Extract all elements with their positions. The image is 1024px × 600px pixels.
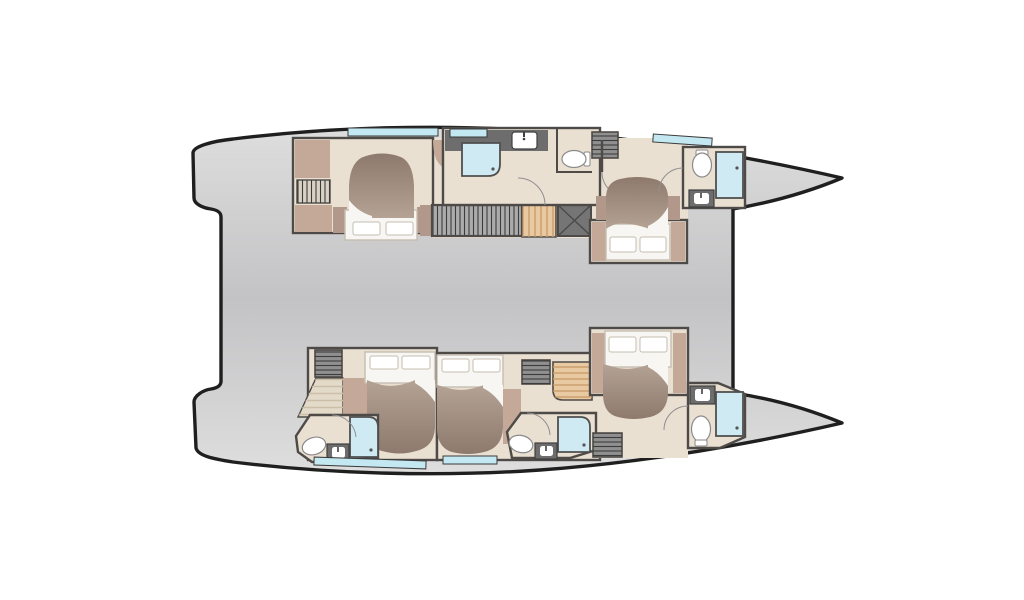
dresser [295,205,332,232]
duvet [349,154,414,219]
hull-window [450,129,487,137]
pillow [640,237,666,252]
shelf-louver-icon [522,360,550,384]
hull-window [348,128,438,136]
starboard-aft-cabin [296,348,437,462]
double-bed [437,355,503,454]
pillow [386,222,413,235]
starboard-aft-bathroom [296,415,378,462]
shelf-louver-icon [432,205,522,236]
pillow [402,356,430,369]
toilet-icon [562,151,590,168]
double-bed [345,154,417,241]
starboard-mid-cabin [437,353,600,460]
shower-icon [716,152,743,198]
wardrobe-louver-icon [297,180,330,203]
bed-side-cabinet [668,196,680,220]
hull-window [443,456,497,464]
double-bed [603,331,671,419]
catamaran-floor-plan [0,0,1024,600]
pillow [640,337,667,352]
shelf-louver-icon [315,350,342,377]
bed-side-cabinet [592,222,606,261]
double-bed [606,177,670,260]
washbasin-icon [689,190,714,207]
shower-icon [558,417,590,452]
pillow [609,337,636,352]
floor-hatch-icon [558,205,591,236]
wardrobe [295,140,330,178]
shower-icon [350,417,378,457]
bed-side-cabinet [671,222,685,261]
pillow [610,237,636,252]
staircase-icon [553,362,592,400]
starboard-forward-cabin [590,328,688,458]
washbasin-icon [535,443,557,459]
duvet [437,385,503,454]
shower-icon [716,392,743,436]
bed-side-cabinet [596,196,606,220]
shelf-louver-icon [593,433,622,457]
pillow [370,356,398,369]
starboard-mid-bathroom [507,413,596,459]
port-mid-bathroom [443,128,600,205]
pillow [353,222,380,235]
washbasin-icon [512,132,537,149]
bed-side-cabinet [673,333,686,393]
pillow [442,359,469,372]
pillow [473,359,500,372]
boat-floor-plan-page [0,0,1024,600]
washbasin-icon [690,386,715,404]
shower-icon [462,143,500,176]
shelf-louver-icon [592,132,618,158]
